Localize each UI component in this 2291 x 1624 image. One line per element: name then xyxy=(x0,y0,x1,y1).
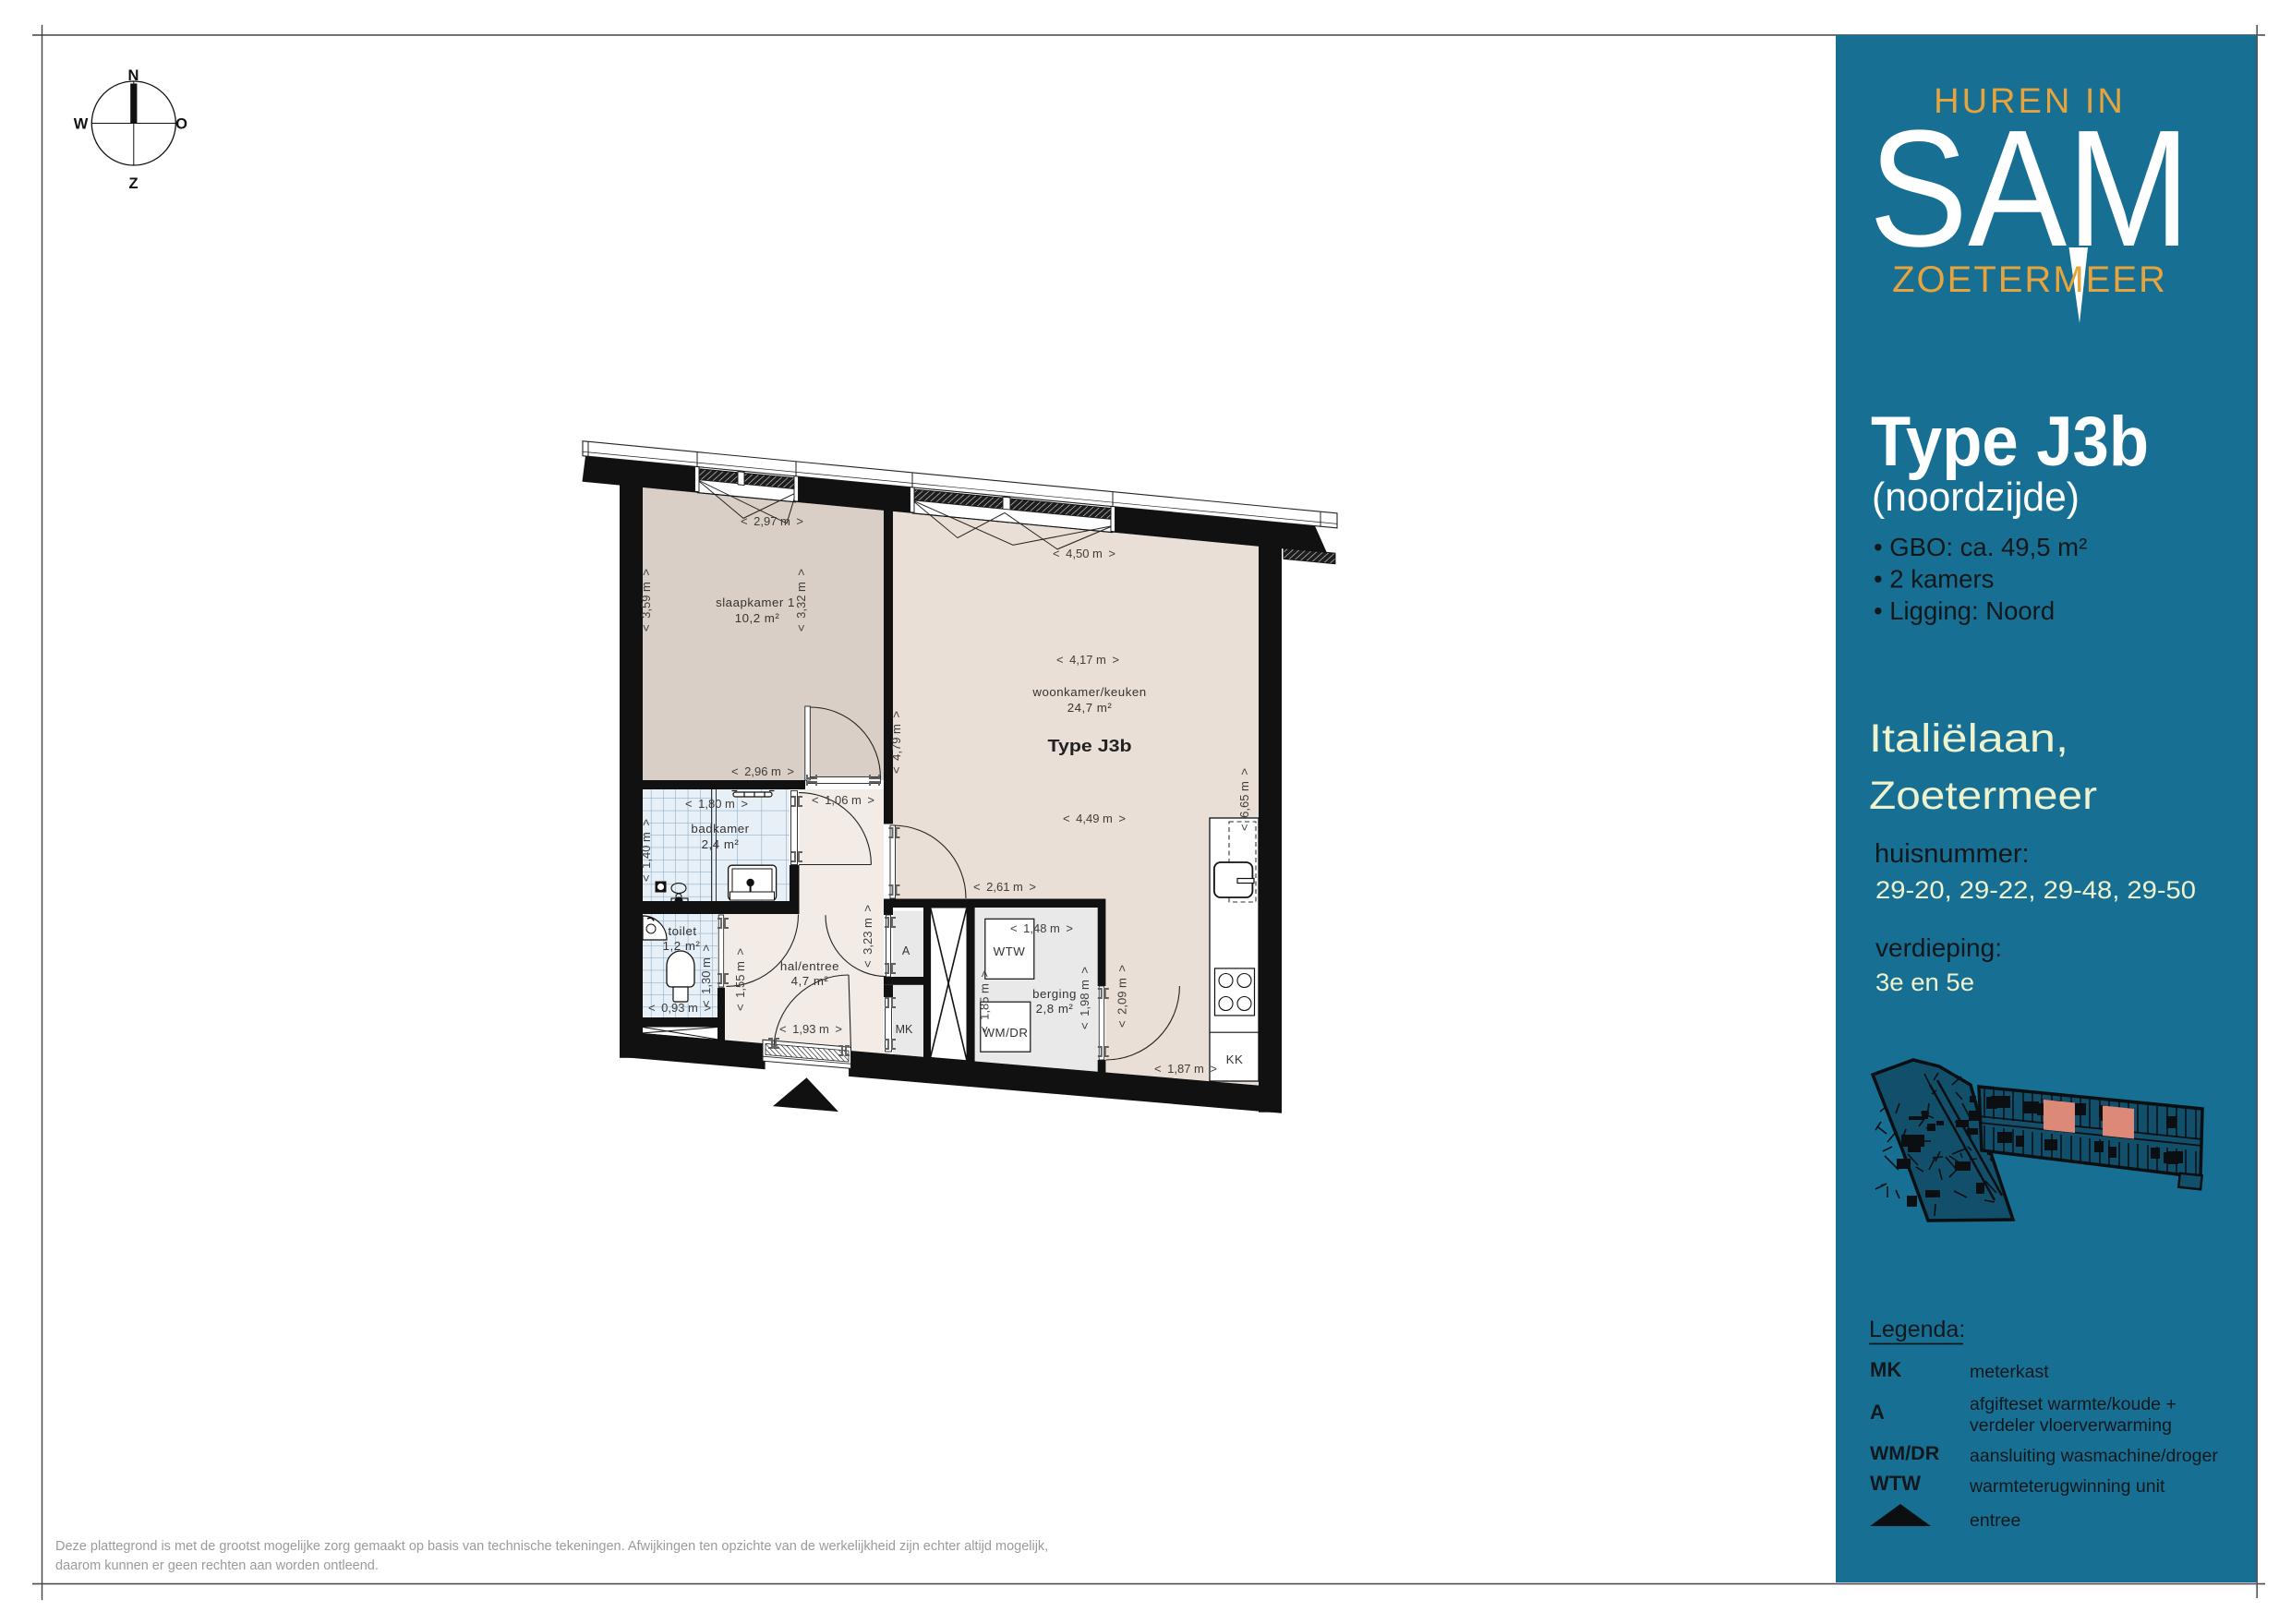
svg-text:KK: KK xyxy=(1226,1053,1244,1066)
svg-text:hal/entree: hal/entree xyxy=(780,959,839,973)
svg-text:3e en 5e: 3e en 5e xyxy=(1875,968,1974,996)
svg-text:< 1,48 m >: < 1,48 m > xyxy=(1010,921,1073,935)
svg-text:< 1,98 m >: < 1,98 m > xyxy=(1078,967,1091,1029)
svg-text:< 4,50 m >: < 4,50 m > xyxy=(1053,547,1115,560)
svg-text:(noordzijde): (noordzijde) xyxy=(1872,475,2080,520)
svg-text:aansluiting wasmachine/droger: aansluiting wasmachine/droger xyxy=(1970,1446,2218,1466)
svg-text:< 1,55 m >: < 1,55 m > xyxy=(733,948,747,1011)
svg-text:< 4,79 m >: < 4,79 m > xyxy=(889,711,903,774)
svg-text:Type J3b: Type J3b xyxy=(1871,403,2149,481)
svg-text:berging: berging xyxy=(1032,987,1077,1001)
svg-text:WTW: WTW xyxy=(1870,1472,1921,1495)
svg-text:WM/DR: WM/DR xyxy=(1870,1442,1940,1464)
svg-text:< 6,65 m >: < 6,65 m > xyxy=(1237,768,1251,831)
svg-text:SAM: SAM xyxy=(1869,96,2190,282)
svg-text:• Ligging: Noord: • Ligging: Noord xyxy=(1874,596,2055,625)
svg-text:2,8 m²: 2,8 m² xyxy=(1036,1002,1074,1016)
svg-text:< 3,59 m >: < 3,59 m > xyxy=(639,569,653,632)
svg-text:badkamer: badkamer xyxy=(691,822,749,836)
svg-text:woonkamer/keuken: woonkamer/keuken xyxy=(1031,685,1146,699)
svg-text:< 2,96 m >: < 2,96 m > xyxy=(731,764,794,778)
svg-text:verdeler vloerverwarming: verdeler vloerverwarming xyxy=(1970,1415,2172,1436)
svg-text:< 4,17 m >: < 4,17 m > xyxy=(1056,653,1119,667)
svg-text:Zoetermeer: Zoetermeer xyxy=(1869,774,2097,818)
svg-text:Type J3b: Type J3b xyxy=(1048,737,1132,755)
svg-text:verdieping:: verdieping: xyxy=(1875,933,2002,962)
svg-text:warmteterugwinning unit: warmteterugwinning unit xyxy=(1969,1476,2165,1497)
svg-text:meterkast: meterkast xyxy=(1970,1362,2049,1382)
svg-text:• GBO: ca. 49,5 m²: • GBO: ca. 49,5 m² xyxy=(1874,533,2087,561)
svg-text:O: O xyxy=(175,116,187,133)
svg-text:N: N xyxy=(128,67,139,84)
svg-text:• 2 kamers: • 2 kamers xyxy=(1874,565,1994,594)
svg-text:ZOETERMEER: ZOETERMEER xyxy=(1892,259,2167,300)
svg-text:MK: MK xyxy=(1870,1358,1901,1381)
svg-text:10,2 m²: 10,2 m² xyxy=(735,611,780,625)
svg-text:< 1,85 m >: < 1,85 m > xyxy=(978,970,992,1033)
svg-text:A: A xyxy=(902,944,910,957)
svg-text:WM/DR: WM/DR xyxy=(983,1026,1028,1040)
svg-text:A: A xyxy=(1870,1401,1885,1424)
svg-text:Italiëlaan,: Italiëlaan, xyxy=(1869,716,2068,761)
svg-text:toilet: toilet xyxy=(668,924,696,938)
svg-text:< 2,61 m >: < 2,61 m > xyxy=(973,880,1036,894)
svg-text:2,4 m²: 2,4 m² xyxy=(702,837,740,851)
svg-text:entree: entree xyxy=(1970,1510,2020,1531)
svg-text:< 2,09 m >: < 2,09 m > xyxy=(1115,965,1129,1028)
svg-text:< 1,06 m >: < 1,06 m > xyxy=(812,793,874,807)
svg-text:< 3,32 m >: < 3,32 m > xyxy=(794,569,808,632)
svg-text:< 4,49 m >: < 4,49 m > xyxy=(1063,812,1126,825)
svg-text:24,7 m²: 24,7 m² xyxy=(1067,701,1113,715)
svg-text:huisnummer:: huisnummer: xyxy=(1875,839,2030,869)
svg-text:W: W xyxy=(74,116,89,133)
svg-text:slaapkamer 1: slaapkamer 1 xyxy=(716,595,795,609)
svg-text:< 1,40 m >: < 1,40 m > xyxy=(639,819,653,882)
svg-text:< 2,97 m >: < 2,97 m > xyxy=(741,514,803,528)
svg-text:afgifteset warmte/koude +: afgifteset warmte/koude + xyxy=(1970,1394,2176,1414)
svg-text:< 1,80 m >: < 1,80 m > xyxy=(685,797,748,811)
svg-text:4,7 m²: 4,7 m² xyxy=(791,974,829,988)
svg-text:29-20, 29-22, 29-48, 29-50: 29-20, 29-22, 29-48, 29-50 xyxy=(1875,876,2196,904)
svg-text:< 3,23 m >: < 3,23 m > xyxy=(861,905,874,968)
svg-text:< 1,30 m >: < 1,30 m > xyxy=(699,944,713,1007)
svg-text:< 1,93 m >: < 1,93 m > xyxy=(779,1022,842,1036)
svg-text:Deze plattegrond is met de gro: Deze plattegrond is met de grootst mogel… xyxy=(55,1539,1048,1554)
svg-text:Legenda:: Legenda: xyxy=(1869,1317,1965,1342)
svg-text:< 1,87 m >: < 1,87 m > xyxy=(1154,1062,1217,1076)
svg-text:MK: MK xyxy=(896,1023,913,1036)
svg-text:daarom kunnen er geen rechten: daarom kunnen er geen rechten aan worden… xyxy=(55,1558,379,1573)
svg-text:Z: Z xyxy=(128,175,138,192)
svg-text:WTW: WTW xyxy=(994,944,1026,958)
svg-text:1,2 m²: 1,2 m² xyxy=(663,939,701,953)
